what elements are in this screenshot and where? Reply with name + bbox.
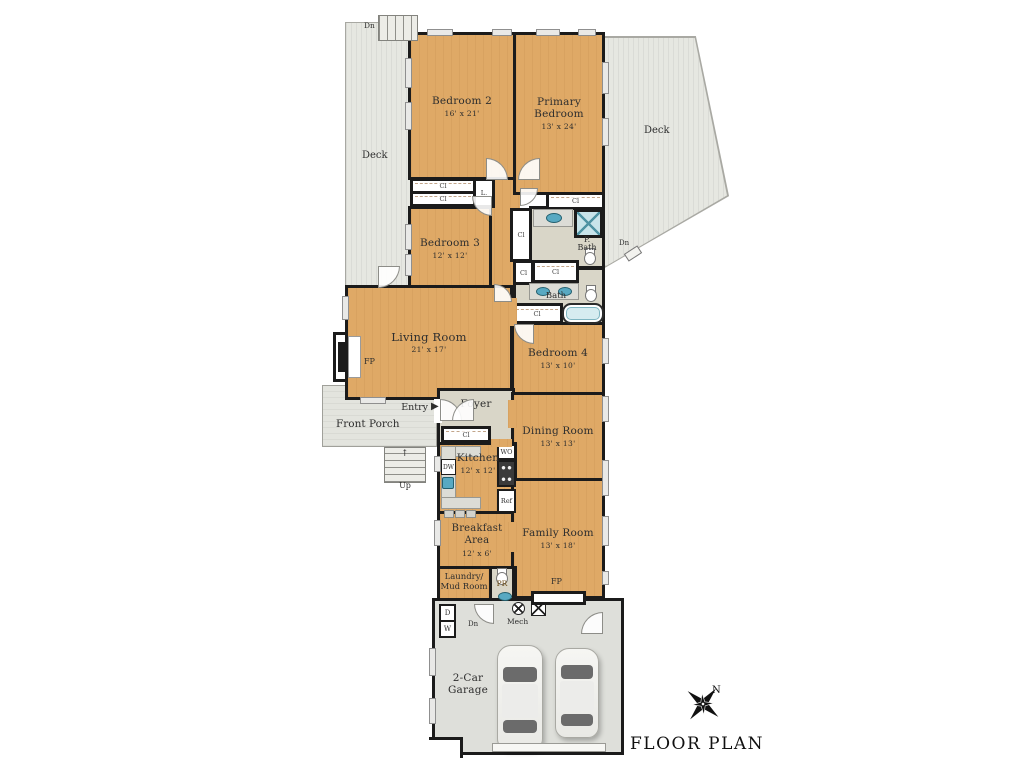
room-label: Bedroom 2	[432, 95, 492, 107]
closet-label: Cl	[438, 182, 447, 190]
refrigerator: Ref	[497, 489, 516, 513]
closet-hall-small: Cl	[513, 260, 534, 285]
living-firebox	[338, 342, 348, 372]
window	[602, 396, 609, 422]
foyer-dining-opening	[508, 400, 517, 428]
closet-label: Cl	[551, 268, 560, 276]
closet-label: Cl	[532, 310, 541, 318]
room-living: Living Room 21' x 17'	[345, 285, 513, 400]
closet-bedroom4: Cl	[511, 303, 563, 324]
refrigerator-label: Ref	[501, 497, 512, 505]
car-right	[555, 648, 599, 738]
room-dims: 13' x 10'	[541, 361, 576, 370]
powder-sink	[498, 592, 512, 601]
compass-north-label: N	[712, 685, 721, 696]
room-dims: 13' x 24'	[542, 122, 577, 131]
bar-stool	[466, 510, 476, 518]
car-windshield	[503, 667, 536, 682]
family-fp-label: FP	[551, 578, 562, 586]
garage-label: 2-Car Garage	[440, 672, 496, 696]
deck-right-label: Deck	[644, 127, 670, 135]
car-left	[497, 645, 543, 750]
car-roof	[502, 684, 537, 718]
living-hearth	[348, 336, 361, 378]
bathtub	[562, 303, 604, 324]
foyer-kitchen-opening	[491, 439, 512, 447]
laundry-down-label: Dn	[468, 620, 478, 628]
deck-right-floor	[603, 38, 729, 267]
room-dims: 21' x 17'	[412, 345, 447, 354]
room-breakfast: Breakfast Area 12' x 6'	[437, 511, 517, 569]
front-porch-label: Front Porch	[336, 420, 400, 428]
garage-door	[492, 743, 606, 752]
entry-label: Entry	[384, 404, 428, 412]
kitchen-label: Kitchen 12' x 12'	[452, 452, 504, 475]
dryer-label: D	[445, 609, 451, 617]
deck-stairs-down	[378, 15, 418, 41]
window	[429, 648, 436, 676]
window	[602, 118, 609, 146]
room-label: Dining Room	[522, 425, 593, 437]
garage-line2: Garage	[440, 684, 496, 696]
room-bedroom2: Bedroom 2 16' x 21'	[408, 32, 516, 180]
room-label: Bedroom 4	[528, 347, 588, 359]
room-label: Primary Bedroom	[530, 96, 588, 120]
porch-stairs-arrow: ↑	[401, 450, 409, 458]
window	[405, 102, 412, 130]
garage-line1: 2-Car	[440, 672, 496, 684]
deck-left-label: Deck	[362, 152, 388, 160]
window	[405, 254, 412, 276]
breakfast-family-opening	[508, 522, 517, 552]
window	[405, 224, 412, 250]
shower	[574, 209, 603, 238]
car-windshield	[561, 665, 593, 679]
family-fireplace	[531, 591, 586, 605]
primary-bath-label: P. Bath	[572, 236, 602, 252]
room-dims: 13' x 18'	[541, 541, 576, 550]
room-dims: 12' x 12'	[433, 251, 468, 260]
closet-bath: Cl	[532, 260, 579, 283]
floor-plan: Deck Dn Deck Dn Front Porch ↑ Up Bedroom…	[0, 0, 1024, 768]
bar-stool	[444, 510, 454, 518]
room-dims: 13' x 13'	[541, 439, 576, 448]
closet-label: Cl	[571, 197, 580, 205]
window	[342, 296, 349, 320]
window	[405, 58, 412, 88]
window	[434, 456, 441, 472]
window	[536, 29, 560, 36]
hall-living-opening	[508, 298, 517, 326]
bath-toilet	[585, 285, 597, 302]
car-rear-window	[503, 720, 536, 732]
deck-right-down-label: Dn	[619, 239, 629, 247]
laundry-line2: Mud Room	[438, 582, 490, 592]
car-rear-window	[561, 714, 593, 725]
window	[429, 698, 436, 724]
window	[602, 571, 609, 585]
room-dims: 16' x 21'	[445, 109, 480, 118]
kitchen-sink	[442, 477, 454, 489]
room-label: Kitchen	[452, 452, 504, 464]
washer-label: W	[444, 625, 451, 633]
primary-bath-line2: Bath	[572, 244, 602, 252]
car-roof	[560, 681, 594, 711]
kitchen-peninsula	[441, 497, 481, 509]
garage-notch	[429, 737, 463, 758]
closet-bedroom2-b: Cl	[410, 191, 476, 207]
porch-stairs-up-label: Up	[384, 482, 426, 490]
powder-label: PR	[489, 580, 515, 588]
pbath-sink	[546, 213, 562, 223]
room-label: Living Room	[391, 331, 467, 343]
laundry-line1: Laundry/	[438, 572, 490, 582]
closet-label: Cl	[438, 195, 447, 203]
window	[427, 29, 453, 36]
room-label2: Area	[465, 535, 490, 547]
closet-hall-tall: Cl	[510, 208, 532, 262]
closet-foyer: Cl	[441, 426, 491, 443]
closet-label: Cl	[519, 269, 528, 277]
deck-stairs-down-label: Dn	[364, 22, 375, 30]
plan-title: FLOOR PLAN	[630, 734, 764, 754]
window	[578, 29, 596, 36]
bath-label: Bath	[531, 292, 581, 300]
room-label: Family Room	[522, 527, 593, 539]
room-label: Bedroom 3	[420, 237, 480, 249]
window	[602, 460, 609, 496]
room-label: Breakfast	[452, 523, 503, 535]
bar-stool	[455, 510, 465, 518]
room-bedroom3: Bedroom 3 12' x 12'	[408, 206, 492, 290]
closet-primary: Cl	[546, 192, 605, 210]
pbath-door-arc	[520, 188, 538, 206]
window	[602, 516, 609, 546]
window	[602, 62, 609, 94]
window	[434, 520, 441, 546]
closet-label: Cl	[461, 431, 470, 439]
water-heater-icon	[512, 602, 525, 615]
washer: W	[439, 620, 456, 638]
deck-right	[601, 36, 731, 269]
closet-label: Cl	[516, 231, 525, 239]
room-dims: 12' x 6'	[462, 549, 492, 558]
room-dims: 12' x 12'	[452, 466, 504, 475]
living-fp-label: FP	[364, 358, 375, 366]
entry-arrow-icon: ▶	[431, 403, 439, 411]
window	[360, 397, 386, 404]
room-dining: Dining Room 13' x 13'	[511, 392, 605, 481]
mech-label: Mech	[507, 618, 528, 626]
window	[602, 338, 609, 364]
window	[492, 29, 512, 36]
laundry-label: Laundry/ Mud Room	[438, 572, 490, 592]
